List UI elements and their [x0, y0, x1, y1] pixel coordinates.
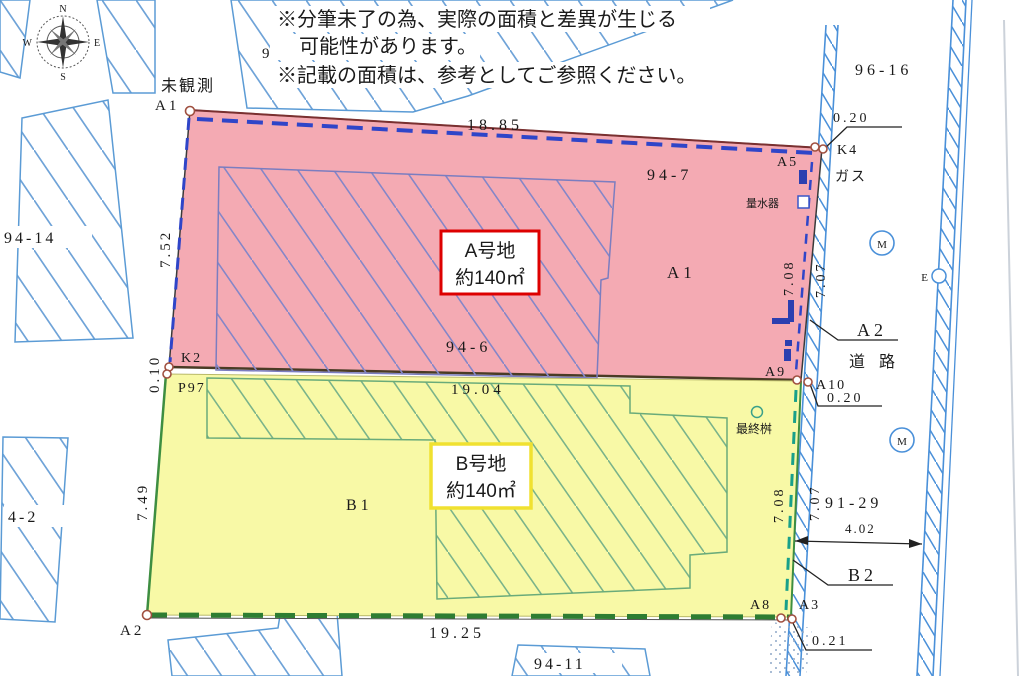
point-a9-label: A9: [765, 365, 786, 380]
note-line-3: ※記載の面積は、参考としてご参照ください。: [277, 64, 696, 87]
compass-w-label: W: [23, 38, 33, 49]
point-k2-label: K2: [181, 351, 202, 366]
point-a3: [788, 615, 796, 623]
dim-bottom-b: 19.25: [429, 625, 485, 642]
point-a2: [143, 611, 152, 620]
house-b1-label: B1: [346, 497, 373, 514]
point-a9: [793, 376, 801, 384]
point-k4: [819, 145, 827, 153]
stray-digit: 9: [262, 46, 270, 62]
lot-91-29-label: 91-29: [825, 495, 882, 512]
lot-94-14-label: 94-14: [4, 230, 56, 247]
gas-label: ガス: [835, 169, 867, 185]
point-a2-label: A2: [120, 623, 144, 639]
parcel-a-title: A号地: [465, 240, 516, 262]
manhole-m-label-1: M: [877, 239, 887, 251]
road-width-dim-label: 4.02: [845, 521, 876, 536]
unobserved-label: 未観測: [161, 77, 215, 95]
lot-4-2-label: 4-2: [8, 509, 38, 526]
point-k2b: [163, 370, 171, 378]
offset-020-top-label: 0.20: [833, 111, 870, 126]
point-a8: [777, 614, 785, 622]
road-label: 道路: [849, 353, 909, 371]
cadastral-map: N E S W 9 ※分筆未了の為、実際の面積と差異が生じる 可能性があります。…: [0, 0, 1024, 676]
house-a1-label: A1: [667, 263, 696, 282]
point-a5-label: A5: [777, 155, 798, 170]
note-line-2: 可能性があります。: [299, 35, 477, 58]
parcel-b-area: 約140㎡: [446, 479, 516, 502]
lot-96-16-label: 96-16: [855, 62, 912, 79]
point-a3-label: A3: [799, 598, 820, 613]
dim-right-inner-b: 7.08: [772, 487, 787, 524]
offset-021-label: 0.21: [812, 634, 849, 649]
compass-s-label: S: [60, 72, 66, 83]
compass-e-label: E: [94, 38, 100, 49]
parcel-b-bottom-dashed-line: [147, 615, 791, 617]
dim-left-a: 7.52: [158, 230, 174, 268]
lot-94-11-label: 94-11: [534, 656, 586, 673]
final-basin-label: 最終桝: [736, 421, 772, 436]
lot-94-7-label: 94-7: [647, 167, 692, 184]
point-a8-label: A8: [750, 598, 771, 613]
dim-right-inner-a: 7.08: [782, 260, 797, 297]
water-meter-label: 量水器: [746, 197, 779, 210]
marker-e-circle: [932, 269, 946, 283]
point-p97-label: P97: [178, 381, 206, 396]
road-point-b2-label: B2: [848, 565, 877, 585]
parcel-a-area: 約140㎡: [455, 266, 525, 289]
parcel-b-title: B号地: [456, 453, 507, 475]
dim-right-outer-b: 7.07: [808, 485, 823, 522]
point-a5: [811, 143, 819, 151]
point-a1: [186, 107, 195, 116]
point-k4-label: K4: [837, 143, 858, 158]
dim-right-outer-a: 7.07: [814, 262, 829, 299]
road-point-a2-label: A2: [857, 320, 887, 340]
parcel-a-building-outline: [216, 167, 615, 378]
water-meter-box: [798, 196, 809, 208]
dim-left-b: 7.49: [135, 483, 151, 521]
survey-map-svg: N E S W 9 ※分筆未了の為、実際の面積と差異が生じる 可能性があります。…: [0, 0, 1024, 676]
dim-left-offset-a: 0.10: [147, 355, 163, 393]
marker-e-label: E: [921, 272, 928, 284]
point-a10: [804, 378, 812, 386]
compass-n-label: N: [59, 4, 66, 15]
dim-top-b: 19.04: [451, 382, 505, 398]
manhole-m-label-2: M: [897, 436, 907, 448]
offset-020-mid-label: 0.20: [827, 391, 864, 406]
dim-top-a: 18.85: [467, 117, 523, 134]
note-line-1: ※分筆未了の為、実際の面積と差異が生じる: [277, 8, 677, 31]
point-a1-label: A1: [155, 98, 179, 114]
lot-94-6-label: 94-6: [446, 339, 491, 356]
